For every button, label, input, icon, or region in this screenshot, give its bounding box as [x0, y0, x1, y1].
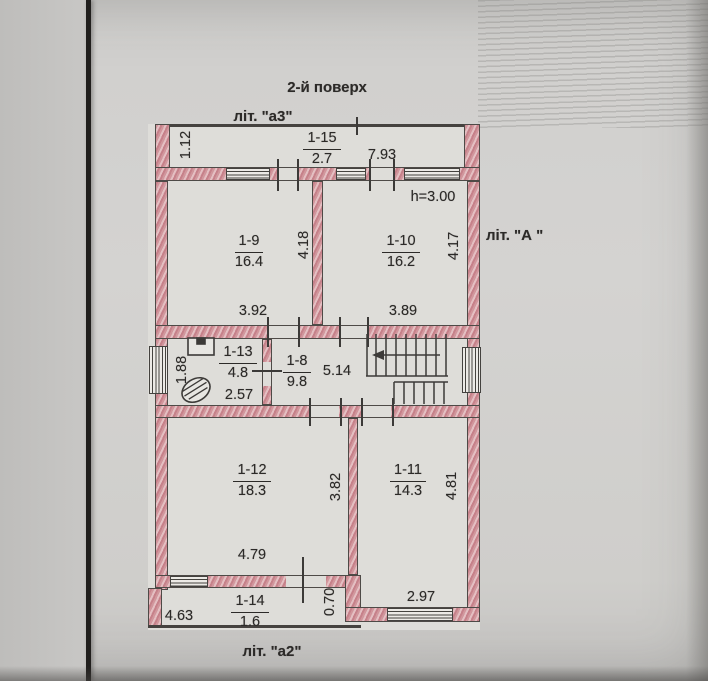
dim-balcony-a3-depth: 1.12	[179, 122, 195, 168]
dim-hall-width: 5.14	[307, 364, 367, 380]
dim-room9-width: 3.92	[223, 304, 283, 320]
door-opening	[362, 406, 391, 417]
door-opening	[370, 168, 394, 180]
room-number: 1-9	[235, 232, 264, 253]
room-area: 14.3	[376, 482, 440, 501]
ceiling-height-label: h=3.00	[400, 190, 466, 206]
dimension-tick	[277, 159, 279, 191]
room-area: 18.3	[220, 482, 284, 501]
room-1-9-label: 1-9 16.4	[217, 232, 281, 272]
dimension-tick	[392, 398, 394, 426]
room-number: 1-15	[303, 129, 340, 150]
wall-between-room9-room10	[312, 181, 323, 325]
dim-room10-width: 3.89	[373, 304, 433, 320]
door-opening	[286, 576, 326, 587]
room-area: 16.2	[369, 253, 433, 272]
door-opening	[340, 326, 367, 338]
room-1-10-label: 1-10 16.2	[369, 232, 433, 272]
dim-balcony-a2-left: 4.63	[149, 609, 209, 625]
scanned-floor-plan-page: 2-й поверх літ. "а3" літ. "А " літ. "а2"…	[0, 0, 708, 681]
dim-room13-depth: 1.88	[175, 347, 191, 393]
page-bottom-edge	[0, 666, 708, 681]
dim-balcony-a2-right: 0.70	[323, 579, 339, 625]
balcony-a3-right-wall	[464, 124, 480, 169]
room-number: 1-14	[231, 592, 268, 613]
room-1-14-label: 1-14 1.6	[218, 592, 282, 632]
window-icon	[387, 608, 453, 621]
window-icon	[149, 346, 168, 394]
door-opening	[278, 168, 298, 180]
dimension-tick	[339, 317, 341, 347]
dim-room9-depth: 4.18	[297, 222, 313, 268]
window-icon	[404, 168, 460, 180]
page-right-edge	[686, 0, 708, 681]
dimension-tick	[361, 398, 363, 426]
room-number: 1-10	[382, 232, 419, 253]
window-icon	[170, 576, 208, 587]
liter-a2-label: літ. "а2"	[212, 644, 332, 661]
dim-room11-width: 2.97	[391, 590, 451, 606]
dim-room12-depth: 3.82	[329, 464, 345, 510]
dim-room10-depth: 4.17	[447, 223, 463, 269]
dim-balcony-a3-width: 7.93	[352, 148, 412, 164]
liter-A-label: літ. "А "	[486, 228, 556, 245]
door-opening	[310, 406, 339, 417]
room-number: 1-12	[233, 461, 270, 482]
room-area: 2.7	[290, 150, 354, 169]
page-left-margin	[0, 0, 86, 681]
room-1-12-label: 1-12 18.3	[220, 461, 284, 501]
dimension-tick	[298, 317, 300, 347]
room-1-15-label: 1-15 2.7	[290, 129, 354, 169]
stairs-icon	[366, 333, 448, 406]
room-number: 1-13	[219, 343, 256, 364]
dimension-tick	[309, 398, 311, 426]
page-title: 2-й поверх	[247, 80, 407, 97]
window-icon	[462, 347, 481, 393]
window-icon	[336, 168, 366, 180]
dimension-tick	[356, 117, 358, 135]
scan-stripes-artifact	[478, 0, 708, 128]
room-area: 16.4	[217, 253, 281, 272]
dim-room13-width: 2.57	[209, 388, 269, 404]
liter-a3-label: літ. "а3"	[203, 109, 323, 126]
room-number: 1-11	[390, 461, 426, 482]
door-opening	[268, 326, 298, 338]
room-1-13-label: 1-13 4.8	[206, 343, 270, 383]
wall-between-room12-room11	[348, 418, 358, 575]
dim-room11-depth: 4.81	[445, 463, 461, 509]
stair-arrow-head	[372, 350, 384, 360]
room-area: 1.6	[218, 613, 282, 632]
window-icon	[226, 168, 270, 180]
dimension-tick	[367, 317, 369, 347]
room-area: 4.8	[206, 364, 270, 383]
wall-main-right	[467, 181, 480, 622]
dim-room12-width: 4.79	[222, 548, 282, 564]
dimension-tick	[340, 398, 342, 426]
room-1-11-label: 1-11 14.3	[376, 461, 440, 501]
dimension-tick	[302, 557, 304, 603]
balcony-a3-left-wall	[155, 124, 170, 169]
page-binding-line	[86, 0, 91, 681]
